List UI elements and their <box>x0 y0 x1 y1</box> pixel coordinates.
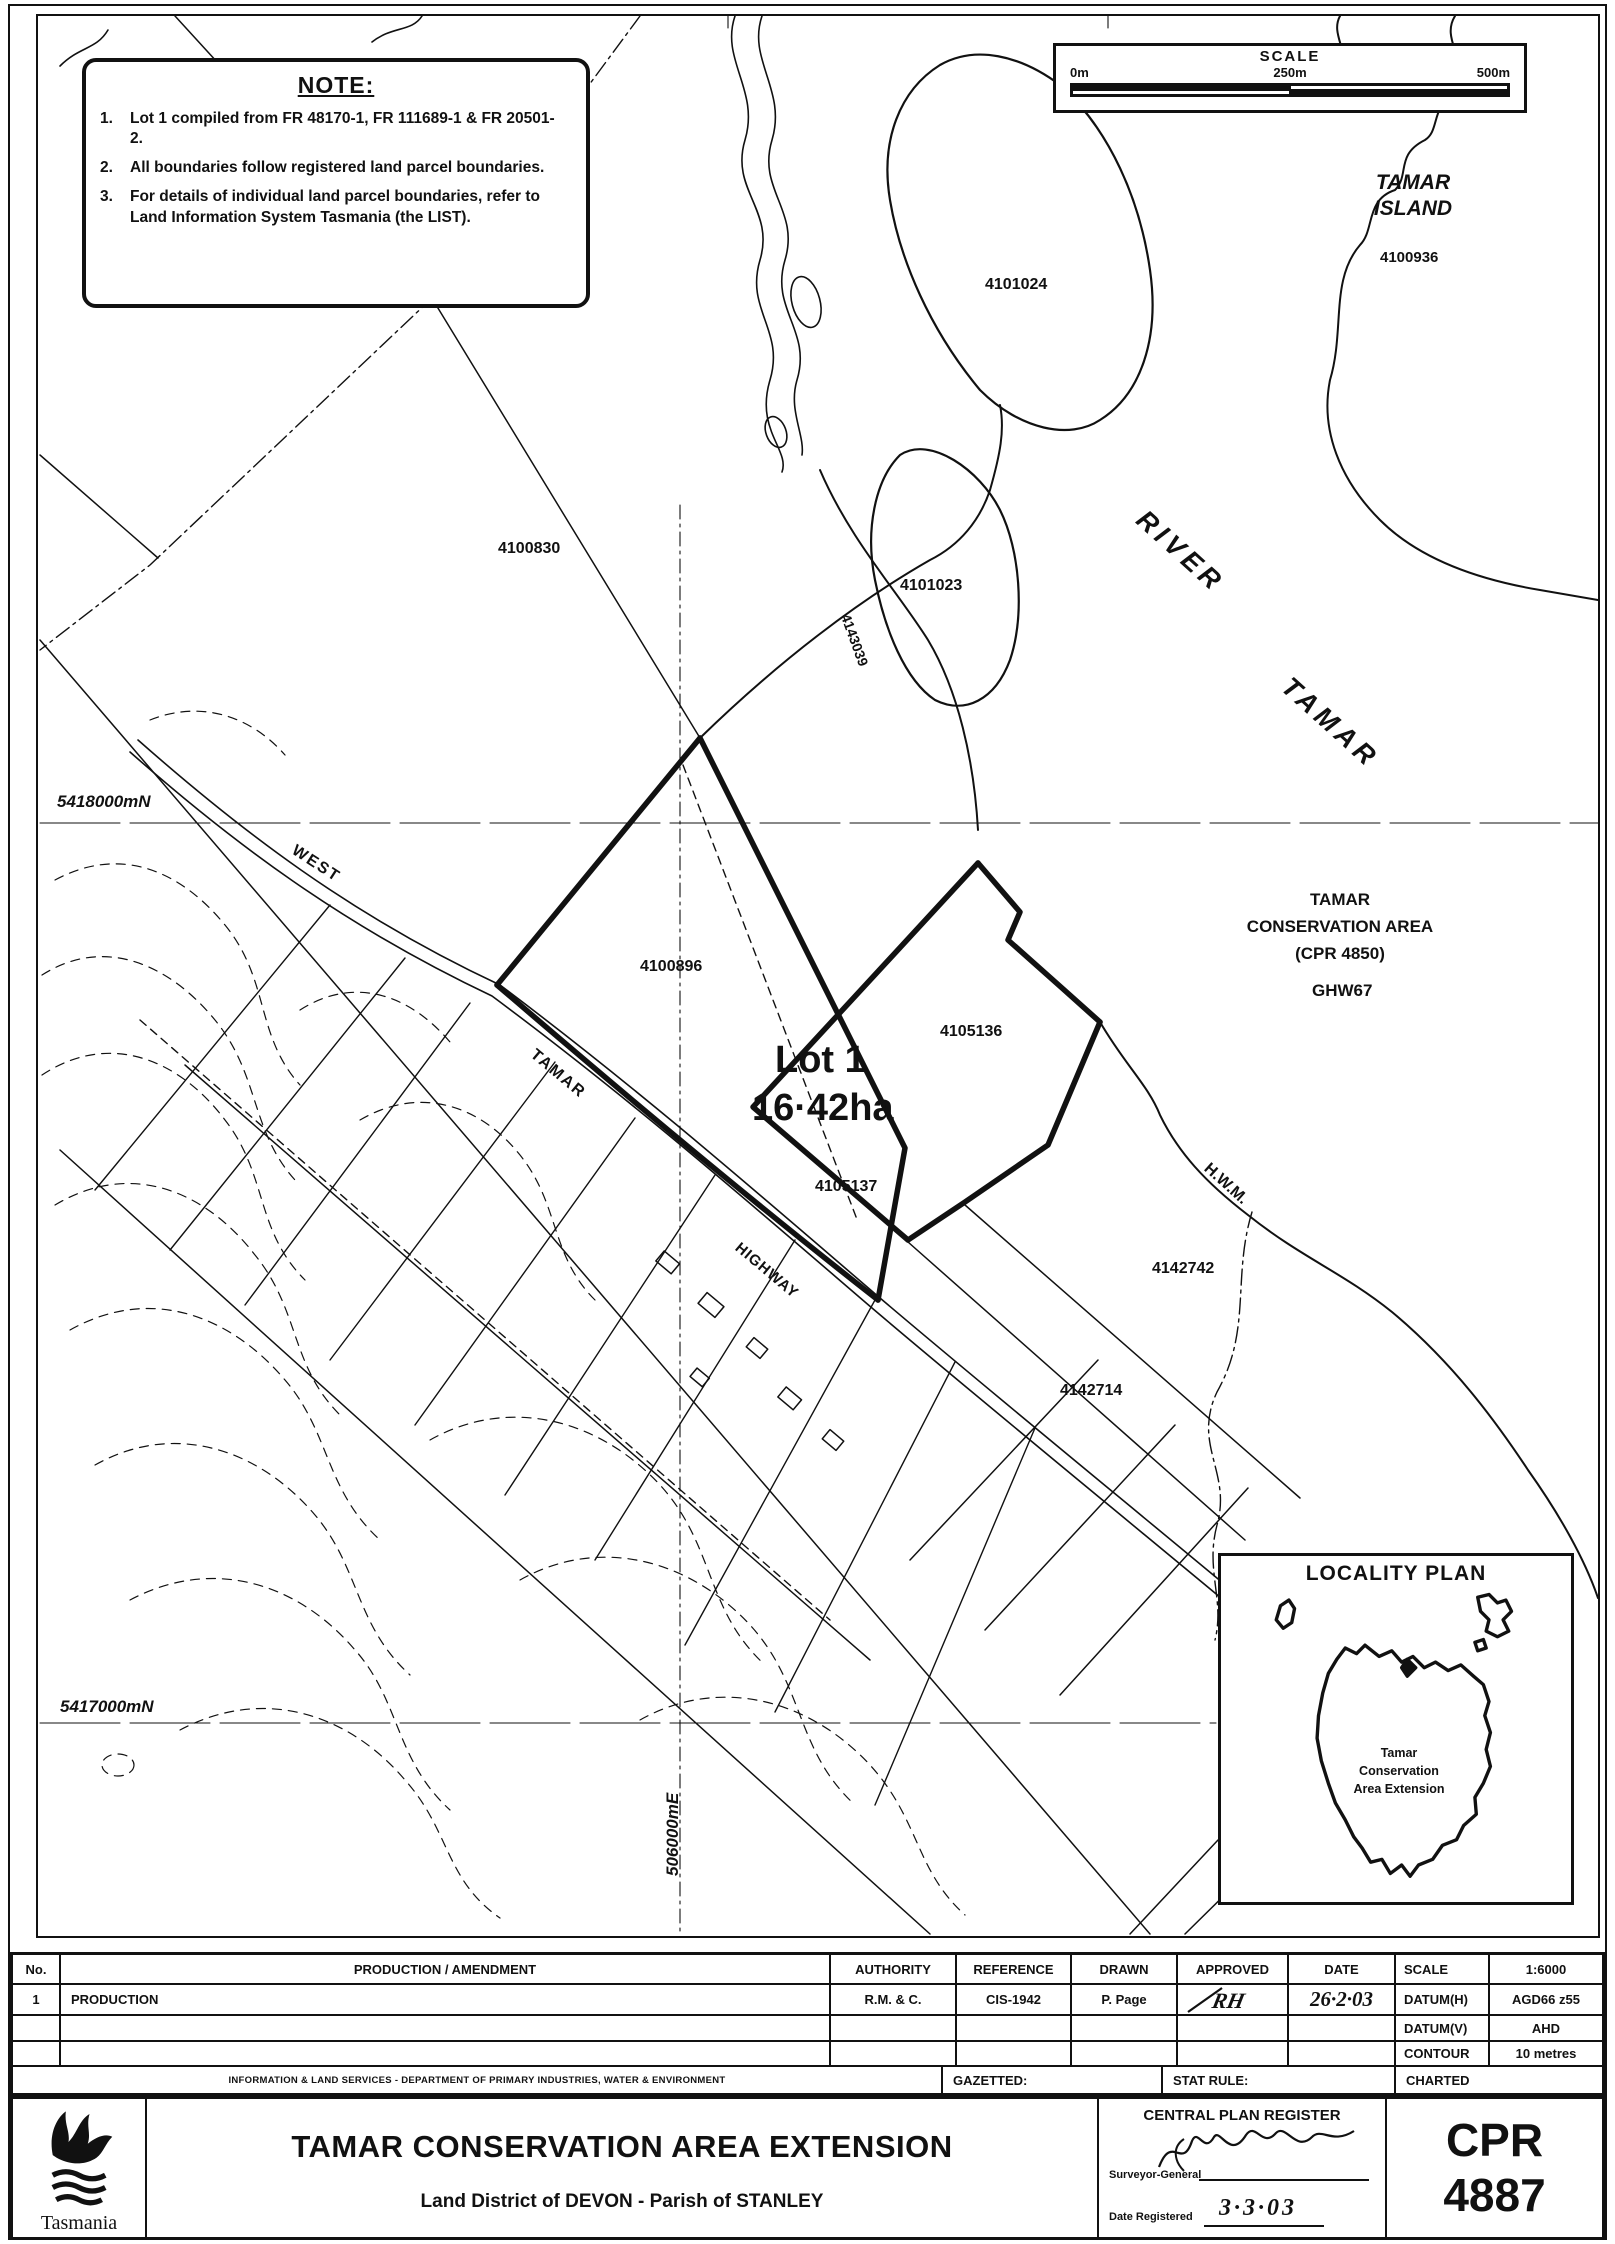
surveyor-signature <box>1154 2121 1364 2173</box>
grid-northing-5417000: 5417000mN <box>60 1698 154 1717</box>
note-item-text: All boundaries follow registered land pa… <box>130 158 560 178</box>
logo-cell: Tasmania <box>13 2099 147 2237</box>
locality-callout-line1: Tamar <box>1381 1746 1418 1760</box>
scale-label: SCALE <box>1396 1962 1488 1977</box>
row1-approved-signature-cell: RH <box>1178 1985 1289 2014</box>
scale-tick-250: 250m <box>1273 66 1306 80</box>
datum-v-value: AHD <box>1488 2016 1602 2040</box>
row1-amendment: PRODUCTION <box>61 1985 831 2014</box>
production-amendment-table: No. PRODUCTION / AMENDMENT AUTHORITY REF… <box>10 1952 1605 2096</box>
tasmania-logo <box>29 2107 129 2212</box>
parcel-label-4142714: 4142714 <box>1060 1382 1122 1400</box>
col-header-amendment: PRODUCTION / AMENDMENT <box>61 1955 831 1983</box>
row1-drawn: P. Page <box>1072 1985 1178 2014</box>
locality-callout-label: Tamar Conservation Area Extension <box>1309 1744 1489 1798</box>
lot1-area-label: 16·42ha <box>752 1088 894 1130</box>
table-row-empty: DATUM(V) AHD <box>13 2016 1602 2042</box>
row1-no: 1 <box>13 1985 61 2014</box>
conservation-area-line3: (CPR 4850) <box>1295 944 1385 963</box>
island-name-line1: TAMAR <box>1376 171 1450 194</box>
meta-contour-cell: CONTOUR 10 metres <box>1396 2042 1602 2065</box>
central-plan-register-cell: CENTRAL PLAN REGISTER Surveyor-General D… <box>1099 2099 1387 2237</box>
scale-tick-500: 500m <box>1477 66 1510 80</box>
parcel-label-4142742: 4142742 <box>1152 1260 1214 1278</box>
conservation-area-line1: TAMAR <box>1310 890 1370 909</box>
row1-date: 26·2·03 <box>1289 1985 1396 2014</box>
note-item-text: Lot 1 compiled from FR 48170-1, FR 11168… <box>130 109 560 149</box>
conservation-area-line2: CONSERVATION AREA <box>1247 917 1433 936</box>
note-item: 3. For details of individual land parcel… <box>100 187 572 227</box>
locality-callout-line3: Area Extension <box>1353 1782 1444 1796</box>
lot1-bold-boundary <box>497 738 1100 1300</box>
col-header-authority: AUTHORITY <box>831 1955 957 1983</box>
surveyor-label: Surveyor-General <box>1109 2169 1201 2181</box>
approved-signature: RH <box>1182 1985 1282 2014</box>
scale-bar-graphic <box>1070 83 1510 97</box>
note-item-number: 1. <box>100 109 130 149</box>
ghw67-label: GHW67 <box>1312 982 1372 1001</box>
grid-easting-506000: 506000mE <box>664 1793 683 1876</box>
grid-northing-5418000: 5418000mN <box>57 793 151 812</box>
internal-dashed-boundary <box>140 765 858 1620</box>
datum-v-label: DATUM(V) <box>1396 2021 1488 2036</box>
island-name-label: TAMAR ISLAND <box>1358 170 1468 223</box>
cpr-label: CPR <box>1446 2113 1543 2168</box>
parcel-label-4100896: 4100896 <box>640 958 702 976</box>
note-item-number: 3. <box>100 187 130 227</box>
datum-h-value: AGD66 z55 <box>1488 1985 1602 2014</box>
scale-box: SCALE 0m 250m 500m <box>1053 43 1527 113</box>
scale-tick-0: 0m <box>1070 66 1089 80</box>
row1-reference: CIS-1942 <box>957 1985 1072 2014</box>
island-outlines <box>871 55 1152 706</box>
table-footer-row: INFORMATION & LAND SERVICES - DEPARTMENT… <box>13 2067 1602 2093</box>
cpr-number: 4887 <box>1443 2168 1545 2223</box>
scale-title: SCALE <box>1056 48 1524 65</box>
date-registered-line <box>1204 2225 1324 2227</box>
locality-callout-line2: Conservation <box>1359 1764 1439 1778</box>
datum-h-label: DATUM(H) <box>1396 1992 1488 2007</box>
island-name-line2: ISLAND <box>1374 197 1452 220</box>
scale-value: 1:6000 <box>1488 1955 1602 1983</box>
department-label: INFORMATION & LAND SERVICES - DEPARTMENT… <box>13 2067 943 2093</box>
locality-plan-box: LOCALITY PLAN Tamar Conservation Area Ex… <box>1218 1553 1574 1905</box>
survey-plan-sheet: { "colors": { "ink": "#111111", "paper":… <box>0 0 1615 2244</box>
meta-datum-h-cell: DATUM(H) AGD66 z55 <box>1396 1985 1602 2014</box>
building-outlines <box>656 1251 844 1450</box>
col-header-drawn: DRAWN <box>1072 1955 1178 1983</box>
tasmania-outline-map <box>1226 1586 1566 1896</box>
plan-title-cell: TAMAR CONSERVATION AREA EXTENSION Land D… <box>147 2099 1099 2237</box>
parcel-label-4101023: 4101023 <box>900 577 962 595</box>
lot1-name-label: Lot 1 <box>775 1040 866 1082</box>
note-item: 1. Lot 1 compiled from FR 48170-1, FR 11… <box>100 109 572 149</box>
table-header-row: No. PRODUCTION / AMENDMENT AUTHORITY REF… <box>13 1955 1602 1985</box>
plan-subtitle: Land District of DEVON - Parish of STANL… <box>147 2191 1097 2213</box>
scale-ticks: 0m 250m 500m <box>1070 66 1510 82</box>
note-item: 2. All boundaries follow registered land… <box>100 158 572 178</box>
conservation-area-label: TAMAR CONSERVATION AREA (CPR 4850) <box>1228 886 1452 968</box>
plan-title: TAMAR CONSERVATION AREA EXTENSION <box>147 2129 1097 2165</box>
row1-authority: R.M. & C. <box>831 1985 957 2014</box>
parcel-label-4100936: 4100936 <box>1380 250 1438 267</box>
approved-initials: RH <box>1209 1988 1248 2013</box>
title-block: Tasmania TAMAR CONSERVATION AREA EXTENSI… <box>10 2096 1605 2240</box>
parcel-label-4100830: 4100830 <box>498 540 560 558</box>
contour-value: 10 metres <box>1488 2042 1602 2065</box>
note-item-text: For details of individual land parcel bo… <box>130 187 560 227</box>
table-row-empty: CONTOUR 10 metres <box>13 2042 1602 2067</box>
locality-plan-title: LOCALITY PLAN <box>1221 1562 1571 1586</box>
charted-label: CHARTED <box>1396 2067 1602 2093</box>
col-header-date: DATE <box>1289 1955 1396 1983</box>
date-registered-value: 3·3·03 <box>1219 2195 1297 2222</box>
contour-lines <box>42 711 965 1918</box>
cpr-number-cell: CPR 4887 <box>1387 2099 1602 2237</box>
note-box: NOTE: 1. Lot 1 compiled from FR 48170-1,… <box>82 58 590 308</box>
date-registered-label: Date Registered <box>1109 2211 1193 2223</box>
surveyor-signature-line <box>1199 2179 1369 2181</box>
parcel-label-4105136: 4105136 <box>940 1023 1002 1041</box>
col-header-approved: APPROVED <box>1178 1955 1289 1983</box>
gazetted-label: GAZETTED: <box>943 2067 1163 2093</box>
note-item-number: 2. <box>100 158 130 178</box>
stat-rule-label: STAT RULE: <box>1163 2067 1396 2093</box>
meta-scale-cell: SCALE 1:6000 <box>1396 1955 1602 1983</box>
shorelines <box>700 16 1598 1598</box>
meta-datum-v-cell: DATUM(V) AHD <box>1396 2016 1602 2040</box>
parcel-label-4105137: 4105137 <box>815 1178 877 1196</box>
logo-wordmark: Tasmania <box>13 2212 145 2235</box>
parcel-label-4101024: 4101024 <box>985 276 1047 294</box>
contour-label: CONTOUR <box>1396 2046 1488 2061</box>
table-row: 1 PRODUCTION R.M. & C. CIS-1942 P. Page … <box>13 1985 1602 2016</box>
col-header-no: No. <box>13 1955 61 1983</box>
col-header-reference: REFERENCE <box>957 1955 1072 1983</box>
note-title: NOTE: <box>100 72 572 99</box>
